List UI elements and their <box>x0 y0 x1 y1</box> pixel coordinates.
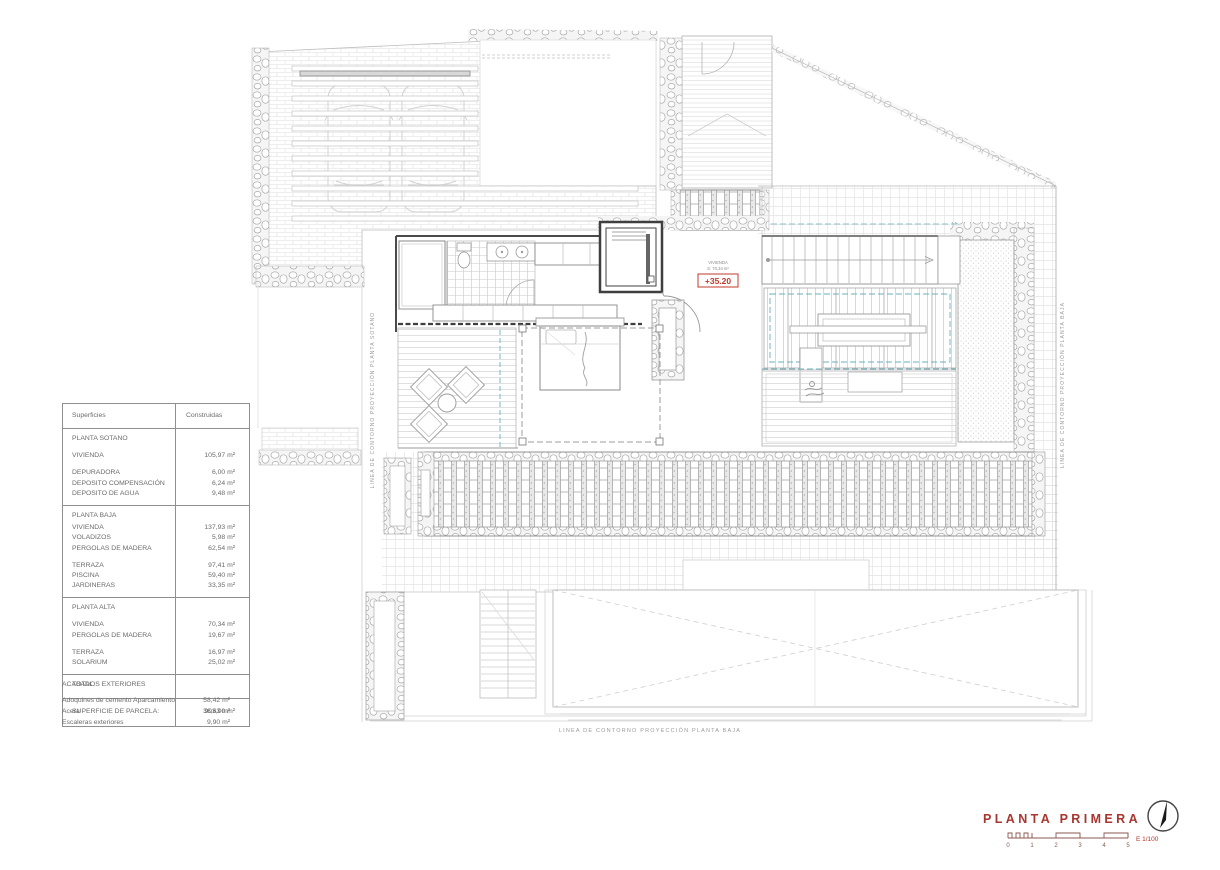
stone-border <box>660 38 682 190</box>
grid-notch <box>683 560 869 592</box>
scale-tick: 3 <box>1078 843 1082 849</box>
headboard <box>536 318 624 326</box>
level-marker: VIVIENDA S: 70,34 m² +35.20 <box>698 260 738 287</box>
stone-border-left <box>252 48 269 284</box>
table-row: SOLARIUM25,02 m² <box>63 658 249 668</box>
exteriors-row: Adoquines de cemento Aparcamiento58,42 m… <box>62 696 230 707</box>
stair-landing <box>938 236 960 284</box>
table-row: VIVIENDA105,97 m² <box>63 451 249 461</box>
entrance-court <box>660 36 772 190</box>
north-arrow <box>1148 801 1178 831</box>
driveway-wall-bar <box>300 71 470 76</box>
gravel-planter <box>958 240 1014 442</box>
corridor-planter <box>652 300 684 380</box>
vanity-sinks <box>487 243 535 261</box>
header-superficies: Superficies <box>63 411 176 421</box>
scale-label: E 1/100 <box>1136 836 1159 843</box>
toilet <box>457 243 471 268</box>
exteriors-row: Escaleras exteriores9,90 m² <box>62 718 230 729</box>
table-row: DEPURADORA6,00 m² <box>63 468 249 478</box>
exteriors-row: Acera36,63 m² <box>62 707 230 718</box>
pool-projection <box>370 590 1092 721</box>
table-row: VIVIENDA70,34 m² <box>63 620 249 630</box>
scale-ticks: 0 1 2 3 4 5 <box>1006 843 1130 849</box>
page: VIVIENDA S: 70,34 m² +35.20 LINEA DE CON… <box>0 0 1220 870</box>
side-table <box>438 394 456 412</box>
room-label-line2: S: 70,34 m² <box>707 266 729 271</box>
side-planter-left <box>384 458 411 534</box>
stone-border-right <box>1014 228 1034 458</box>
bathroom <box>399 241 535 309</box>
table-row: PLANTA BAJA <box>63 511 249 521</box>
scale-tick: 2 <box>1054 843 1058 849</box>
table-row: JARDINERAS33,35 m² <box>63 581 249 591</box>
wood-pergola-band <box>418 452 1045 536</box>
table-row: DEPOSITO COMPENSACIÓN6,24 m² <box>63 479 249 489</box>
table-section: PLANTA ALTAVIVIENDA70,34 m²PERGOLAS DE M… <box>63 598 249 675</box>
house-terrace-deck <box>398 328 518 448</box>
shower <box>399 241 445 309</box>
roof-void <box>480 40 656 186</box>
site-boundary-diagonal <box>772 44 1056 190</box>
table-header: Superficies Construidas <box>63 404 249 429</box>
exteriors-title: ACABADOS EXTERIORES <box>62 680 230 691</box>
table-row: DEPOSITO DE AGUA9,48 m² <box>63 489 249 499</box>
table-row: TERRAZA16,97 m² <box>63 648 249 658</box>
exteriors-rows: Adoquines de cemento Aparcamiento58,42 m… <box>62 696 230 729</box>
upper-terrace-deck <box>762 369 956 446</box>
stone-border-bottom <box>256 266 364 287</box>
house <box>396 216 768 451</box>
table-divider <box>175 404 176 726</box>
table-row: PLANTA SOTANO <box>63 434 249 444</box>
table-row: PERGOLAS DE MADERA62,54 m² <box>63 544 249 554</box>
scale-bar <box>1008 833 1128 838</box>
table-row: VOLADIZOS5,98 m² <box>63 533 249 543</box>
scale-tick: 4 <box>1102 843 1106 849</box>
scale-tick: 5 <box>1126 843 1130 849</box>
lower-left-paving <box>258 283 361 465</box>
plan-title: PLANTA PRIMERA <box>983 812 1141 826</box>
table-section: PLANTA BAJAVIVIENDA137,93 m²VOLADIZOS5,9… <box>63 506 249 598</box>
room-label-line1: VIVIENDA <box>708 260 728 265</box>
stone-border-top <box>468 29 658 41</box>
table-row: PERGOLAS DE MADERA19,67 m² <box>63 631 249 641</box>
bridge-beam <box>790 326 926 333</box>
table-section: PLANTA SOTANOVIVIENDA105,97 m²DEPURADORA… <box>63 429 249 506</box>
table-row: VIVIENDA137,93 m² <box>63 523 249 533</box>
header-construidas: Construidas <box>176 411 249 421</box>
exterior-finishes: ACABADOS EXTERIORES Adoquines de cemento… <box>62 680 230 729</box>
level-value: +35.20 <box>705 276 732 286</box>
scale-tick: 1 <box>1030 843 1034 849</box>
table-row: PISCINA59,40 m² <box>63 571 249 581</box>
areas-table: Superficies Construidas PLANTA SOTANOVIV… <box>62 403 250 727</box>
scale-tick: 0 <box>1006 843 1010 849</box>
title-block: PLANTA PRIMERA 0 1 2 3 4 5 E 1/100 <box>983 801 1178 849</box>
table-row: PLANTA ALTA <box>63 603 249 613</box>
caption-right: LINEA DE CONTORNO PROYECCIÓN PLANTA BAJA <box>1059 302 1066 468</box>
exterior-stair-lower <box>480 590 536 698</box>
elevator-core <box>600 222 662 292</box>
caption-bottom: LINEA DE CONTORNO PROYECCIÓN PLANTA BAJA <box>559 727 741 734</box>
table-row: TERRAZA97,41 m² <box>63 561 249 571</box>
caption-left: LINEA DE CONTORNO PROYECCIÓN PLANTA SOTA… <box>369 312 376 489</box>
